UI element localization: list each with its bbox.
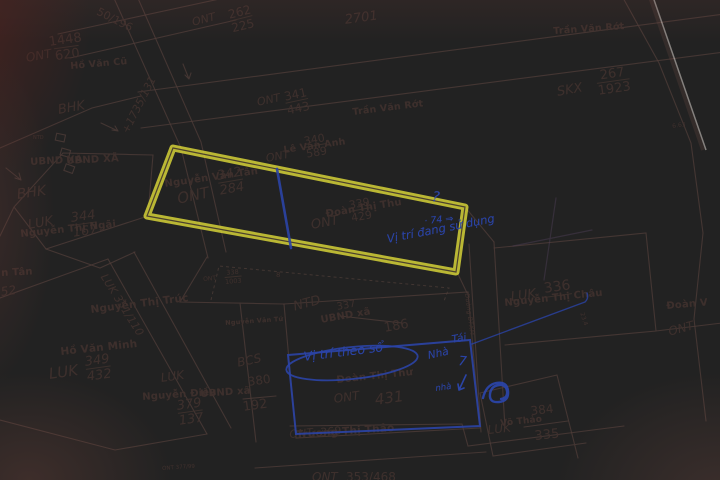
pen-annotations: [0, 0, 720, 480]
cadastral-map-photo: 50/196 2701 Văn Cố ONT 262225 ONT 144862…: [0, 0, 720, 480]
map-scene: 50/196 2701 Văn Cố ONT 262225 ONT 144862…: [0, 0, 720, 480]
